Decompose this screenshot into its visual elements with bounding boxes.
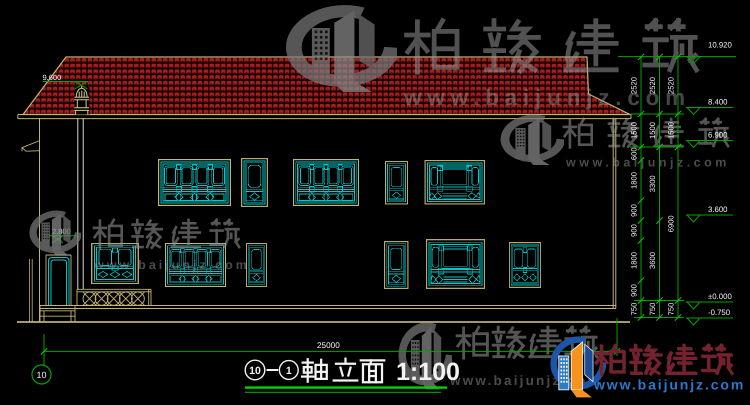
svg-text:750: 750	[630, 303, 639, 316]
svg-text:www.baijunjz.com: www.baijunjz.com	[593, 377, 745, 393]
svg-text:2520: 2520	[667, 77, 676, 94]
svg-text:3.600: 3.600	[708, 205, 728, 214]
svg-text:750: 750	[648, 303, 657, 316]
svg-text:1500: 1500	[630, 122, 639, 139]
svg-text:-0.750: -0.750	[708, 308, 731, 317]
svg-text:1500: 1500	[648, 122, 657, 139]
svg-text:1800: 1800	[630, 252, 639, 269]
svg-text:10: 10	[36, 370, 46, 380]
svg-text:900: 900	[630, 224, 639, 237]
svg-text:1:100: 1:100	[396, 358, 460, 386]
svg-text:9.600: 9.600	[43, 73, 62, 82]
svg-text:www.baijunjz.com: www.baijunjz.com	[565, 156, 730, 170]
svg-text:8.400: 8.400	[708, 98, 728, 107]
svg-text:±0.000: ±0.000	[708, 292, 732, 301]
svg-text:750: 750	[667, 303, 676, 316]
svg-text:900: 900	[630, 284, 639, 297]
svg-text:600: 600	[630, 147, 639, 160]
svg-text:10.920: 10.920	[708, 41, 733, 50]
svg-text:2520: 2520	[630, 77, 639, 94]
svg-text:10: 10	[249, 365, 261, 377]
svg-text:3600: 3600	[648, 252, 657, 269]
svg-text:3300: 3300	[648, 175, 657, 192]
svg-text:2520: 2520	[648, 77, 657, 94]
svg-text:1800: 1800	[630, 172, 639, 189]
svg-text:900: 900	[630, 204, 639, 217]
svg-text:6.900: 6.900	[708, 131, 728, 140]
svg-text:1500: 1500	[667, 122, 676, 139]
svg-text:25000: 25000	[317, 341, 340, 350]
svg-text:www.baijunjz.com: www.baijunjz.com	[93, 258, 250, 272]
svg-text:6900: 6900	[667, 215, 676, 232]
svg-text:1: 1	[286, 365, 292, 377]
